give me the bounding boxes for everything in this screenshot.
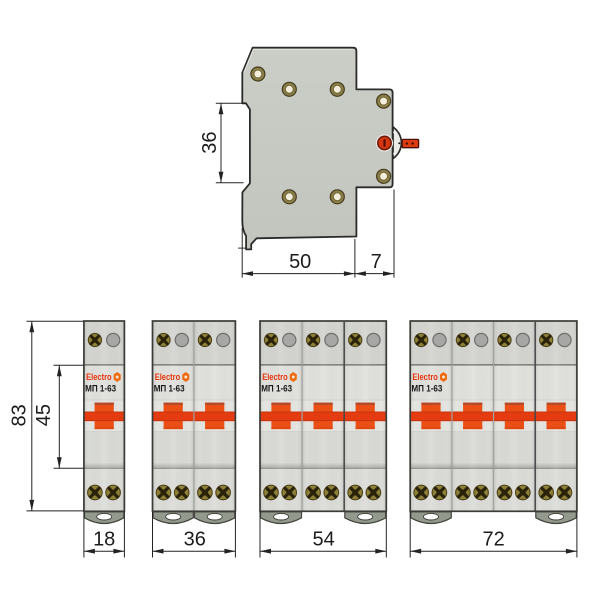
svg-text:МП 1-63: МП 1-63	[85, 383, 116, 393]
svg-text:Electro: Electro	[86, 372, 112, 382]
svg-text:Electro: Electro	[412, 372, 438, 382]
svg-text:45: 45	[33, 404, 55, 426]
svg-text:18: 18	[93, 528, 115, 550]
svg-text:72: 72	[482, 528, 504, 550]
svg-text:54: 54	[312, 528, 334, 550]
svg-text:83: 83	[9, 404, 31, 426]
svg-text:МП 1-63: МП 1-63	[411, 383, 442, 393]
svg-text:Electro: Electro	[262, 372, 288, 382]
svg-text:Electro: Electro	[155, 372, 181, 382]
svg-text:7: 7	[371, 251, 382, 273]
svg-text:МП 1-63: МП 1-63	[261, 383, 292, 393]
svg-text:36: 36	[184, 528, 206, 550]
svg-text:МП 1-63: МП 1-63	[154, 383, 185, 393]
svg-text:36: 36	[199, 131, 221, 153]
svg-text:50: 50	[289, 251, 311, 273]
